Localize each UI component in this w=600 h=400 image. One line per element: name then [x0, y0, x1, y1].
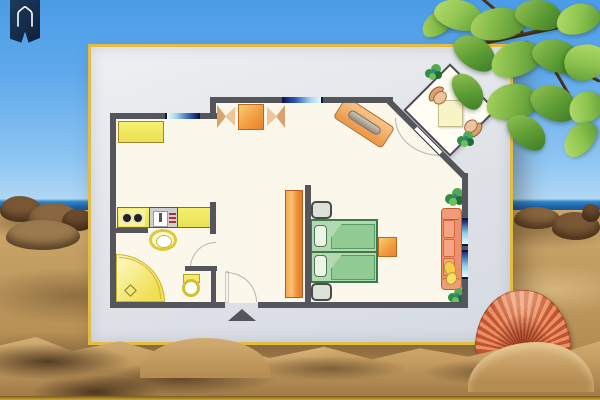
- sofa: [441, 208, 462, 290]
- chair-back: [217, 105, 226, 128]
- blanket: [331, 224, 375, 249]
- pillow: [314, 255, 327, 277]
- burner: [123, 214, 131, 222]
- bottom-border-line: [0, 396, 600, 400]
- beach-floorplan-poster: [0, 0, 600, 400]
- dining-chair-right: [265, 105, 285, 128]
- burner: [134, 214, 142, 222]
- wall-under-stove: [110, 228, 148, 233]
- sofa-armrest: [442, 209, 460, 220]
- faucet-icon: [159, 213, 162, 222]
- bed-divider: [312, 251, 376, 253]
- leaf: [553, 0, 600, 39]
- window-top-left: [165, 113, 200, 119]
- window-right-upper: [462, 218, 468, 246]
- tree-branch: [395, 0, 600, 150]
- wall-bottom-a: [110, 302, 225, 308]
- basin-bowl: [156, 235, 172, 248]
- wall-hall-bedroom: [305, 185, 311, 303]
- dish-rack-line: [169, 221, 176, 223]
- window-top-middle: [282, 97, 323, 103]
- entrance-triangle-marker: [228, 309, 256, 321]
- rock: [582, 204, 600, 222]
- dish-rack-line: [169, 217, 176, 219]
- wardrobe: [285, 190, 303, 298]
- double-bed: [310, 219, 378, 283]
- nightstand-top: [311, 201, 332, 219]
- wall-counter-stub: [210, 202, 216, 234]
- wall-right-a: [462, 173, 468, 218]
- wash-basin: [149, 229, 177, 251]
- chair-seat: [225, 107, 235, 126]
- leaf: [446, 67, 490, 115]
- chair-back: [276, 105, 285, 128]
- sofa-cushion: [443, 239, 455, 257]
- wall-bath-vertical: [211, 266, 216, 303]
- blanket: [331, 255, 375, 280]
- wall-cabinet: [118, 121, 164, 143]
- window-right-lower: [462, 250, 468, 279]
- nightstand-bottom: [311, 283, 332, 301]
- wall-top-left-a: [110, 113, 165, 119]
- wall-left: [110, 113, 116, 308]
- wall-top-mid-a: [210, 97, 282, 103]
- toilet: [182, 273, 201, 298]
- dish-rack-line: [169, 213, 176, 215]
- side-table: [378, 237, 397, 257]
- stove: [119, 209, 145, 226]
- sofa-cushion: [443, 220, 455, 238]
- dining-chair-left: [217, 105, 237, 128]
- kitchen-sink-unit: [149, 207, 178, 228]
- pillow: [314, 225, 327, 247]
- toilet-bowl: [182, 279, 200, 297]
- wall-bottom-b: [258, 302, 468, 308]
- dining-table: [238, 104, 264, 130]
- rock: [6, 220, 80, 250]
- chair-seat: [267, 107, 277, 126]
- house-icon: [13, 3, 37, 29]
- wall-top-mid-b: [323, 97, 393, 103]
